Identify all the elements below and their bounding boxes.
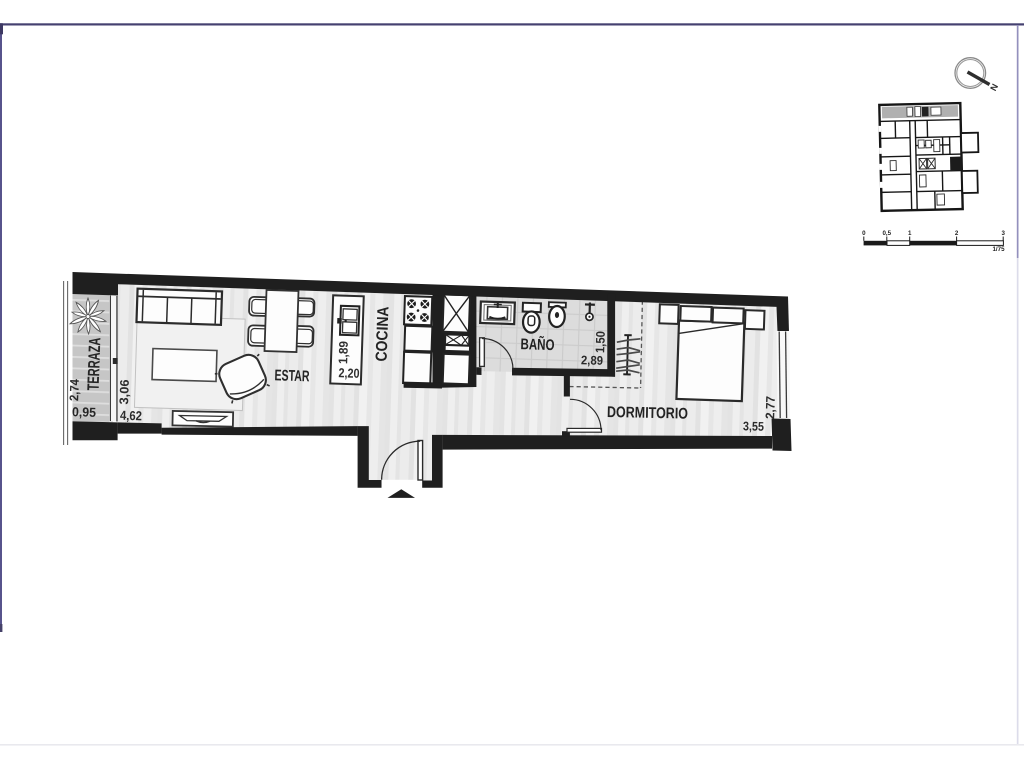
svg-text:1,50: 1,50 <box>593 331 608 354</box>
svg-text:TERRAZA: TERRAZA <box>85 337 105 391</box>
svg-text:2,74: 2,74 <box>67 379 82 402</box>
svg-text:2,77: 2,77 <box>763 396 778 420</box>
svg-text:4,62: 4,62 <box>120 408 143 424</box>
svg-text:0,95: 0,95 <box>72 404 97 420</box>
svg-text:1/75: 1/75 <box>992 246 1005 253</box>
svg-text:3: 3 <box>1001 230 1005 237</box>
svg-text:2: 2 <box>955 230 959 237</box>
svg-text:1: 1 <box>908 230 912 237</box>
svg-text:0: 0 <box>862 230 866 237</box>
svg-text:1,89: 1,89 <box>336 341 351 365</box>
svg-text:2,20: 2,20 <box>338 365 360 381</box>
svg-text:BAÑO: BAÑO <box>520 335 555 354</box>
svg-text:ESTAR: ESTAR <box>274 367 310 385</box>
svg-text:2,89: 2,89 <box>581 353 603 368</box>
svg-text:3,55: 3,55 <box>743 419 764 433</box>
svg-text:COCINA: COCINA <box>374 306 393 362</box>
svg-text:3,06: 3,06 <box>117 379 132 405</box>
svg-text:DORMITORIO: DORMITORIO <box>607 404 688 423</box>
svg-text:0,5: 0,5 <box>882 230 891 237</box>
